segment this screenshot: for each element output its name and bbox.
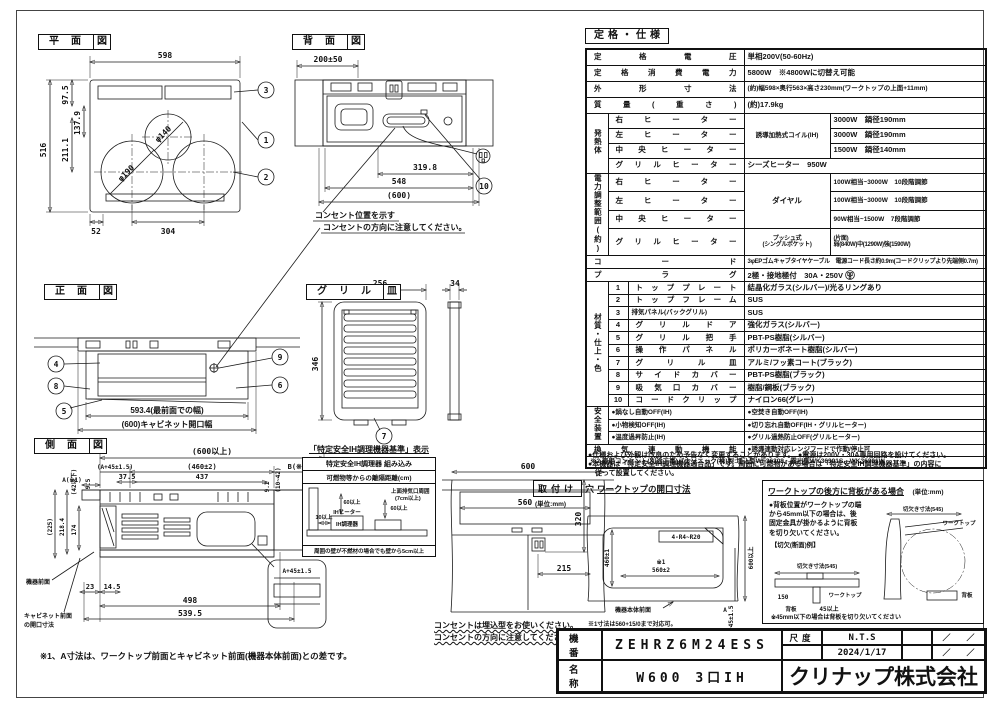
spec-label: 左ヒーター <box>608 128 744 143</box>
side-view-note: ※1、A寸法は、ワークトップ前面とキャビネット前面(機器本体前面)との差です。 <box>40 650 352 662</box>
spec-value: 単相200V(50-60Hz) <box>744 49 986 65</box>
spec-mid: ダイヤル <box>744 173 830 229</box>
spec-value: 100W相当~3000W 10段階調節 <box>830 192 986 211</box>
dim-label: 600 <box>521 462 536 471</box>
part-name: サイドカバー <box>628 369 744 382</box>
cutout-section: 取付け 穴 ワークトップの開口寸法 (単位:mm) 4-R4~R20 460±1… <box>533 480 773 639</box>
rear-dimensions: 200±50 319.8 548 (600) <box>297 55 479 206</box>
dim-label: 548 <box>392 177 407 186</box>
dim-label: 560±2 <box>652 567 670 574</box>
clearance-label: 60以上 <box>343 498 361 506</box>
corner-radius-label: 4-R4~R20 <box>672 534 701 541</box>
outlet-direction-note: コンセントの方向に注意してください。 <box>323 222 467 232</box>
cutout-title-box: 取付け <box>533 480 582 497</box>
front-screw <box>209 363 219 373</box>
safety-item: ●鍋なし自動OFF(IH) <box>608 407 744 419</box>
plug-icon <box>845 270 858 280</box>
dim-label: 346 <box>311 357 320 372</box>
spec-label: 中央ヒーター <box>608 210 744 229</box>
dim-label: 560 <box>518 498 533 507</box>
dim-label: 137.9 <box>73 111 82 135</box>
spec-label: 外形寸法 <box>586 81 744 97</box>
spec-value: (片面)弱(840W)中(1290W)強(1590W) <box>830 229 986 256</box>
cutout-dimensions: 4-R4~R20 460±1 ※1 560±2 600以上 A+45±1.5 A… <box>588 516 755 634</box>
clearance-label: IH調理器 <box>336 520 359 528</box>
part-name: グリル皿 <box>628 357 744 370</box>
part-name: 排気パネル(バックグリル) <box>628 307 744 320</box>
spec-label: 左ヒーター <box>608 192 744 211</box>
dim-label: 460±1 <box>604 549 611 567</box>
front-outline <box>34 338 300 403</box>
plan-callouts: 3 1 2 <box>233 82 274 185</box>
dim-label: 174 <box>71 524 78 535</box>
part-material: SUS <box>744 294 986 307</box>
backboard-unit: (単位:mm) <box>912 486 943 496</box>
part-material: アルミ/フッ素コート(ブラック) <box>744 357 986 370</box>
cutout-title-suffix: 穴 <box>585 482 594 495</box>
dim-label: 200±50 <box>314 55 343 64</box>
part-no: 4 <box>608 319 628 332</box>
model-number: ZEHRZ6M24ESS <box>602 630 782 660</box>
part-material: 強化ガラス(シルバー) <box>744 319 986 332</box>
part-name: 操作パネル <box>628 344 744 357</box>
front-view-title: 正面図 <box>44 284 117 300</box>
dim-label: 9.5 <box>85 478 92 489</box>
callout-1: 1 <box>264 136 269 145</box>
safety-item: ●温度過昇防止(IH) <box>608 432 744 444</box>
machine-front-label: 機器本体前面 <box>615 606 651 614</box>
safety-box-header1: 特定安全IH調理器 組み込み <box>303 458 435 471</box>
dim-label: (10~42) <box>275 467 282 492</box>
dim-label: 598 <box>158 51 173 60</box>
callout-4: 4 <box>54 360 59 369</box>
spec-label: 定格電圧 <box>586 49 744 65</box>
rear-unit-outline <box>323 80 490 163</box>
spec-group-power: 電力調整範囲(約) <box>586 173 608 256</box>
scale-value: N.T.S <box>822 630 902 645</box>
callout-10: 10 <box>479 182 489 191</box>
part-no: 8 <box>608 369 628 382</box>
backboard-body: ●背板位置がワークトップの端 から45mm以下の場合は、後 固定金具が掛かるよう… <box>763 499 869 538</box>
rear-outlet-note: コンセント位置を示す コンセントの方向に注意してください。 <box>313 128 467 233</box>
dim-label: (460±2) <box>187 463 217 471</box>
clearance-label: (7cm以上) <box>395 494 421 502</box>
part-name: トッププレート <box>628 282 744 295</box>
grill-side <box>448 302 461 420</box>
model-label: 機番 <box>558 630 602 660</box>
side-labels: 機器前面 キャビネット前面 の開口寸法 <box>24 552 94 629</box>
callout-6: 6 <box>278 381 283 390</box>
spec-footnotes: ●仕様および外観は改良のため予告なく変更することがあります。 ●電源は200V・… <box>588 452 988 478</box>
grill-pan-view: 256 346 34 7 <box>298 246 482 446</box>
part-no: 7 <box>608 357 628 370</box>
part-material: ポリカーボネート樹脂(シルバー) <box>744 344 986 357</box>
cutout-drawing: 4-R4~R20 460±1 ※1 560±2 600以上 A+45±1.5 A… <box>533 508 773 634</box>
spec-value: 5800W ※4800Wに切替え可能 <box>744 65 986 81</box>
spec-value: 100W相当~3000W 10段階調節 <box>830 173 986 192</box>
side-unit-outline <box>100 490 274 550</box>
spec-mid: 誘導加熱式コイル(IH) <box>744 113 830 158</box>
side-dimensions: (600以上) (A+45±1.5) (460±2) B(※2) A(※1) 3… <box>47 446 324 622</box>
rev-cell <box>902 645 932 660</box>
part-material: SUS <box>744 307 986 320</box>
outlet-position-note: コンセント位置を示す <box>315 210 395 220</box>
dim-label: 34 <box>450 279 460 288</box>
part-no: 10 <box>608 394 628 407</box>
spec-value: 1500W 鍋径140mm <box>830 143 986 158</box>
spec-group-heaters: 発熱体 <box>586 113 608 173</box>
safety-item: ●空焚き自動OFF(IH) <box>744 407 986 419</box>
spec-value: 90W相当~1500W 7段階調節 <box>830 210 986 229</box>
dim-label: (600以上) <box>192 446 232 456</box>
part-no: 5 <box>608 332 628 345</box>
spec-value: シーズヒーター 950W <box>744 158 986 173</box>
safety-item: ●小物検知OFF(IH) <box>608 419 744 431</box>
backboard-title: ワークトップの後方に背板がある場合 <box>763 483 908 497</box>
clearance-label: 60以上 <box>390 504 408 512</box>
callout-5: 5 <box>62 407 67 416</box>
product-name: W600 3口IH <box>602 660 782 692</box>
spec-label: プラグ <box>586 269 744 282</box>
cutout-width-label: 切欠き寸法(545) <box>797 562 838 570</box>
plan-dimensions: 598 516 97.5 137.9 211.1 52 304 φ140 φ19… <box>39 51 240 236</box>
cutout-heading: ワークトップの開口寸法 <box>597 483 691 495</box>
safety-box-heading: 「特定安全IH調理機器基準」表示 <box>302 444 436 455</box>
spec-group-safety: 安全装置 <box>586 407 608 444</box>
clearance-label: 10以上 <box>315 513 333 521</box>
side-view-title: 側面図 <box>34 438 107 454</box>
cutout-unit-label: (単位:mm) <box>535 498 773 508</box>
callout-2: 2 <box>264 173 269 182</box>
dim-label: 437 <box>196 473 209 481</box>
part-name: グリル把手 <box>628 332 744 345</box>
part-material: ナイロン66(グレー) <box>744 394 986 407</box>
safety-box-header2: 可燃物等からの離隔距離(cm) <box>303 471 435 484</box>
worktop-label: ワークトップ <box>828 591 862 599</box>
spec-footnote-line: ●仕様および外観は改良のため予告なく変更することがあります。 ●電源は200V・… <box>588 452 988 461</box>
spec-value: 3φEPゴムキャブタイヤケーブル 電源コード長さ約0.9m(コードクリップより先… <box>744 256 986 269</box>
spec-table: 定格電圧 単相200V(50-60Hz) 定格消費電力 5800W ※4800W… <box>585 48 987 469</box>
cutout-width-label2: 切欠き寸法(545) <box>903 505 944 513</box>
spec-label: コード <box>586 256 744 269</box>
spec-value: 2極・接地極付 30A・250V <box>744 269 986 282</box>
part-material: 樹脂/鋼板(ブラック) <box>744 382 986 395</box>
dim-label: (A+45±1.5) <box>97 464 133 471</box>
rear-view: 200±50 319.8 548 (600) 10 コンセント位置を示す コンセ… <box>283 22 503 242</box>
plan-view: 598 516 97.5 137.9 211.1 52 304 φ140 φ19… <box>28 22 286 244</box>
spec-label: 右ヒーター <box>608 173 744 192</box>
dim-label: 150 <box>778 594 789 601</box>
company-name: クリナップ株式会社 <box>782 660 985 692</box>
spec-value: 3000W 鍋径190mm <box>830 113 986 128</box>
scale-label: 尺度 <box>782 630 822 645</box>
dim-label: (42以下) <box>71 469 78 495</box>
name-label: 名称 <box>558 660 602 692</box>
backboard-box: ワークトップの後方に背板がある場合 (単位:mm) ●背板位置がワークトップの端… <box>762 480 984 624</box>
part-name: グリルドア <box>628 319 744 332</box>
grill-view-title: グリル皿 <box>306 284 401 300</box>
dim-label: 600以上 <box>747 547 755 570</box>
spec-value: (約)17.9kg <box>744 97 986 113</box>
part-name: コードクリップ <box>628 394 744 407</box>
part-no: 9 <box>608 382 628 395</box>
dim-ref-label: ※1 <box>657 558 666 566</box>
dim-label: 498 <box>183 596 198 605</box>
part-name: 吸気口カバー <box>628 382 744 395</box>
spec-footnote-line: ●本機器は「特定安全IH調理機器適合品」です。周囲に可燃物がある場合は「特定安全… <box>588 461 988 470</box>
rear-counter-hatch <box>295 80 493 146</box>
dim-label: 304 <box>161 227 176 236</box>
part-material: 結晶化ガラス(シルバー)/光るリングあり <box>744 282 986 295</box>
spec-title: 定格・仕様 <box>585 28 669 44</box>
clearance-label: IHヒーター <box>333 508 361 516</box>
spec-footnote-line: 従って設置してください。 <box>588 470 988 479</box>
cabinet-front-label2: の開口寸法 <box>24 621 54 629</box>
dim-label: 516 <box>39 143 48 158</box>
dim-label: 319.8 <box>413 163 437 172</box>
dim-label: 593.4(最前面での幅) <box>130 405 204 415</box>
backboard-label2: 背板 <box>961 591 973 599</box>
machine-front-label: 機器前面 <box>26 578 50 586</box>
rev-cell <box>902 630 932 645</box>
part-no: 3 <box>608 307 628 320</box>
plan-cooktop-outline <box>90 80 242 212</box>
safety-item: ●グリル過熱防止OFF(グリルヒーター) <box>744 432 986 444</box>
dim-label: 14.5 <box>104 583 121 591</box>
side-counter <box>82 490 324 557</box>
rear-view-title: 背面図 <box>292 34 365 50</box>
callout-8: 8 <box>54 382 59 391</box>
dim-label: 37.5 <box>119 473 136 481</box>
drawing-sheet: 598 516 97.5 137.9 211.1 52 304 φ140 φ19… <box>0 0 1000 707</box>
front-dimensions: 593.4(最前面での幅) (600)キャビネット開口幅 <box>78 352 256 434</box>
dim-label: 539.5 <box>178 609 202 618</box>
backboard-cutaway-diagram: 切欠き寸法(545) ワークトップ 背板 <box>871 503 979 611</box>
plan-view-title: 平面図 <box>38 34 111 50</box>
rev-date-1: ／ ／ <box>932 630 985 645</box>
safety-clearance-box: 「特定安全IH調理機器基準」表示 特定安全IH調理器 組み込み 可燃物等からの離… <box>302 444 436 557</box>
spec-label: 右ヒーター <box>608 113 744 128</box>
spec-group-materials: 材質・仕上・色 <box>586 282 608 407</box>
dim-label: (225) <box>47 518 54 536</box>
cutout-note: ※1寸法は560+15/0まで対応可。 <box>588 620 677 628</box>
spec-value: (約)幅598×奥行563×高さ230mm(ワークトップの上面+11mm) <box>744 81 986 97</box>
front-view: 4 8 5 9 6 593.4(最前面での幅) (600)キャビネット開口幅 <box>28 246 306 440</box>
spec-mid: プッシュ式(シングルポケット) <box>744 229 830 256</box>
svg-defs <box>0 0 1 1</box>
rev-date-2: ／ ／ <box>932 645 985 660</box>
spec-label: 中央ヒーター <box>608 143 744 158</box>
part-no: 1 <box>608 282 628 295</box>
dim-label: (600) <box>387 191 411 200</box>
part-name: トップフレーム <box>628 294 744 307</box>
safety-clearance-diagram: 上面排気口周囲 (7cm以上) 60以上 60以上 IHヒーター 10以上 IH… <box>303 484 433 540</box>
spec-label: 定格消費電力 <box>586 65 744 81</box>
part-no: 6 <box>608 344 628 357</box>
spec-label: グリルヒーター <box>608 158 744 173</box>
cabinet-front-label: キャビネット前面 <box>24 612 72 620</box>
part-material: PBT-PS樹脂(シルバー) <box>744 332 986 345</box>
safety-box-footnote: 周囲の壁が不燃材の場合でも壁から5cm以上 <box>303 545 435 556</box>
blank-cell <box>782 645 822 660</box>
dim-label: 211.1 <box>61 138 70 162</box>
dim-label: 52 <box>91 227 101 236</box>
burner-diameter-label: φ190 <box>116 163 136 183</box>
dim-label: 97.5 <box>61 85 70 104</box>
worktop-label2: ワークトップ <box>942 519 976 527</box>
detail-dim-label: A+45±1.5 <box>283 568 312 575</box>
backboard-footnote: ※45mm以下の場合は背板を切り欠いてください <box>771 612 901 621</box>
backboard-section-diagram: 切欠き寸法(545) ワークトップ 背板 45以上 150 <box>767 559 869 617</box>
callout-9: 9 <box>278 353 283 362</box>
part-material: PBT-PS樹脂(ブラック) <box>744 369 986 382</box>
clearance-label: 上面排気口周囲 <box>391 487 430 495</box>
part-no: 2 <box>608 294 628 307</box>
dim-label: 23 <box>86 583 94 591</box>
safety-item: ●切り忘れ自動OFF(IH・グリルヒーター) <box>744 419 986 431</box>
dim-label: A <box>723 607 727 614</box>
title-block: 機番 ZEHRZ6M24ESS 尺度 N.T.S ／ ／ 2024/1/17 ／… <box>556 628 987 694</box>
dim-label: 218.4 <box>59 518 66 536</box>
spec-label: グリルヒーター <box>608 229 744 256</box>
drawing-date: 2024/1/17 <box>822 645 902 660</box>
dim-label: (600)キャビネット開口幅 <box>122 419 213 429</box>
grill-front <box>334 302 426 425</box>
dim-label: 9.1 <box>264 481 271 492</box>
callout-3: 3 <box>264 86 269 95</box>
power-plug-icon <box>476 149 490 163</box>
spec-value: 3000W 鍋径190mm <box>830 128 986 143</box>
spec-label: 質量(重さ) <box>586 97 744 113</box>
